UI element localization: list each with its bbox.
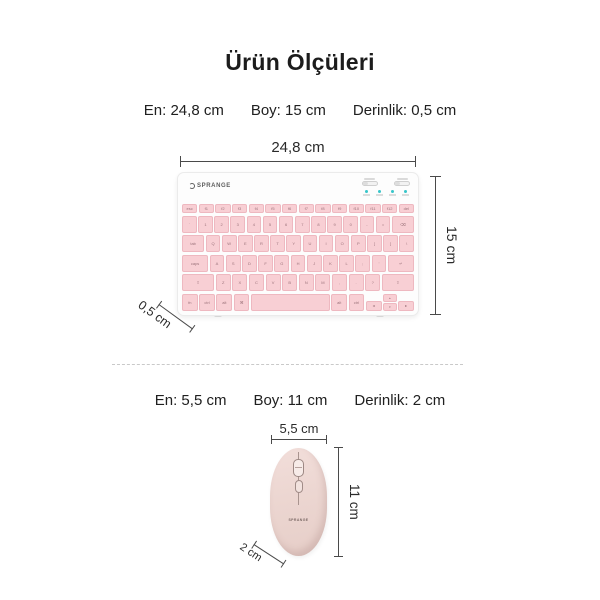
keyboard-width-label: 24,8 cm: [177, 139, 419, 156]
keyboard-key: L: [339, 255, 354, 272]
keyboard-key: ⇧: [382, 274, 414, 291]
mouse-height-label: 11 cm: [347, 447, 362, 557]
brand-swirl-icon: [189, 183, 195, 189]
mouse-width-dimension-line: [271, 439, 327, 440]
keyboard-key: F: [258, 255, 273, 272]
keyboard-key: Z: [216, 274, 231, 291]
keyboard-brand: SPRANGE: [189, 183, 231, 189]
keyboard-key: Y: [286, 235, 301, 252]
keyboard-key: -: [360, 216, 375, 233]
keyboard-key: 9: [327, 216, 342, 233]
mouse-spec-row: En: 5,5 cm Boy: 11 cm Derinlik: 2 cm: [0, 392, 600, 409]
keyboard-key: K: [323, 255, 338, 272]
keyboard-key: ]: [383, 235, 398, 252]
keyboard-key: V: [266, 274, 281, 291]
keyboard-key: esc: [182, 204, 197, 213]
keyboard-key: U: [303, 235, 318, 252]
keyboard-image: SPRANGE escf1f2f3f4f5f6f7f8f9f10f11f12de…: [177, 172, 419, 316]
keyboard-key: [: [367, 235, 382, 252]
mouse-width-label: 5,5 cm: [270, 421, 328, 436]
keyboard-key: M: [315, 274, 330, 291]
keyboard-keys: escf1f2f3f4f5f6f7f8f9f10f11f12del`123456…: [182, 204, 414, 311]
led-icon: [391, 190, 394, 193]
keyboard-key: R: [254, 235, 269, 252]
keyboard-key: ⌘: [234, 294, 250, 311]
keyboard-key: D: [242, 255, 257, 272]
toggle-labels: [362, 178, 410, 180]
keyboard-key: f11: [365, 204, 380, 213]
keyboard-key: f9: [332, 204, 347, 213]
status-leds: [362, 190, 410, 193]
led-icon: [365, 190, 368, 193]
product-dimensions-infographic: Ürün Ölçüleri En: 24,8 cm Boy: 15 cm Der…: [0, 0, 600, 600]
keyboard-key: N: [299, 274, 314, 291]
keyboard-key: f10: [349, 204, 364, 213]
power-toggle-icon: [362, 181, 378, 186]
keyboard-key-row: capsASDFGHJKL;'↵: [182, 255, 414, 272]
keyboard-key: f4: [249, 204, 264, 213]
keyboard-key: alt: [331, 294, 347, 311]
keyboard-height-label: 15 cm: [444, 176, 460, 315]
keyboard-key: `: [182, 216, 197, 233]
keyboard-key-row: ⇧ZXCVBNM,.?⇧: [182, 274, 414, 291]
keyboard-key: ,: [332, 274, 347, 291]
keyboard-key: [251, 294, 330, 311]
keyboard-spec-height: Boy: 15 cm: [251, 102, 326, 119]
mouse-brand-label: SPRANGE: [270, 518, 327, 522]
keyboard-key-row: fnctrlalt⌘altctrl◂▴▾▸: [182, 294, 414, 311]
mouse-spec-width: En: 5,5 cm: [155, 392, 227, 409]
keyboard-key: ↵: [388, 255, 414, 272]
keyboard-key: \: [399, 235, 414, 252]
keyboard-key: f5: [265, 204, 280, 213]
led-icon: [378, 190, 381, 193]
keyboard-key-row: escf1f2f3f4f5f6f7f8f9f10f11f12del: [182, 204, 414, 213]
keyboard-key: 0: [343, 216, 358, 233]
keyboard-key: W: [222, 235, 237, 252]
keyboard-key: 3: [230, 216, 245, 233]
keyboard-indicator-panel: [362, 178, 410, 196]
keyboard-key: .: [349, 274, 364, 291]
keyboard-key: tab: [182, 235, 204, 252]
mouse-dpi-button: [295, 480, 303, 493]
keyboard-key: ▾: [383, 303, 397, 311]
keyboard-key: f2: [215, 204, 230, 213]
keyboard-key: ctrl: [349, 294, 365, 311]
keyboard-key: ▴▾: [383, 294, 397, 311]
keyboard-key: Q: [206, 235, 221, 252]
keyboard-key: A: [210, 255, 225, 272]
keyboard-key: ?: [365, 274, 380, 291]
keyboard-key: f6: [282, 204, 297, 213]
keyboard-key: f1: [199, 204, 214, 213]
page-title: Ürün Ölçüleri: [0, 49, 600, 76]
led-labels: [362, 194, 410, 196]
keyboard-spec-depth: Derinlik: 0,5 cm: [353, 102, 456, 119]
keyboard-key: O: [335, 235, 350, 252]
keyboard-key: 7: [295, 216, 310, 233]
keyboard-key: 1: [198, 216, 213, 233]
keyboard-key-row: `1234567890-=⌫: [182, 216, 414, 233]
keyboard-key: fn: [182, 294, 198, 311]
keyboard-key: C: [249, 274, 264, 291]
keyboard-brand-label: SPRANGE: [197, 183, 231, 189]
led-icon: [404, 190, 407, 193]
keyboard-key: ctrl: [199, 294, 215, 311]
keyboard-key: del: [399, 204, 414, 213]
keyboard-key: ▸: [398, 301, 414, 311]
keyboard-spec-row: En: 24,8 cm Boy: 15 cm Derinlik: 0,5 cm: [0, 102, 600, 119]
keyboard-key: J: [307, 255, 322, 272]
keyboard-key: X: [232, 274, 247, 291]
mouse-height-dimension-line: [338, 447, 339, 557]
keyboard-key: caps: [182, 255, 208, 272]
keyboard-key: f12: [382, 204, 397, 213]
keyboard-key: ◂: [366, 301, 382, 311]
keyboard-key: P: [351, 235, 366, 252]
keyboard-key: 2: [214, 216, 229, 233]
keyboard-key: 6: [279, 216, 294, 233]
keyboard-height-dimension-line: [435, 176, 436, 315]
keyboard-spec-width: En: 24,8 cm: [144, 102, 224, 119]
mouse-spec-depth: Derinlik: 2 cm: [354, 392, 445, 409]
mouse-spec-height: Boy: 11 cm: [253, 392, 327, 409]
keyboard-key: B: [282, 274, 297, 291]
keyboard-key: T: [270, 235, 285, 252]
keyboard-key: ▴: [383, 294, 397, 302]
keyboard-key: H: [291, 255, 306, 272]
keyboard-key: I: [319, 235, 334, 252]
keyboard-key-row: tabQWERTYUIOP[]\: [182, 235, 414, 252]
keyboard-key: S: [226, 255, 241, 272]
keyboard-key: 4: [247, 216, 262, 233]
keyboard-key: f8: [315, 204, 330, 213]
keyboard-key: ;: [355, 255, 370, 272]
keyboard-key: 8: [311, 216, 326, 233]
mouse-depth-dimension: 2 cm: [246, 544, 284, 576]
keyboard-key: alt: [216, 294, 232, 311]
keyboard-key: E: [238, 235, 253, 252]
keyboard-key: ⌫: [392, 216, 414, 233]
section-divider: [112, 364, 463, 365]
keyboard-key: ⇧: [182, 274, 214, 291]
keyboard-key: f3: [232, 204, 247, 213]
mode-toggle-icon: [394, 181, 410, 186]
keyboard-key: =: [376, 216, 391, 233]
keyboard-key: 5: [263, 216, 278, 233]
mouse-scroll-wheel: [293, 459, 304, 477]
keyboard-key: ': [372, 255, 387, 272]
keyboard-width-dimension-line: [180, 161, 416, 162]
keyboard-key: G: [274, 255, 289, 272]
toggle-switches: [362, 181, 410, 186]
keyboard-key: f7: [299, 204, 314, 213]
